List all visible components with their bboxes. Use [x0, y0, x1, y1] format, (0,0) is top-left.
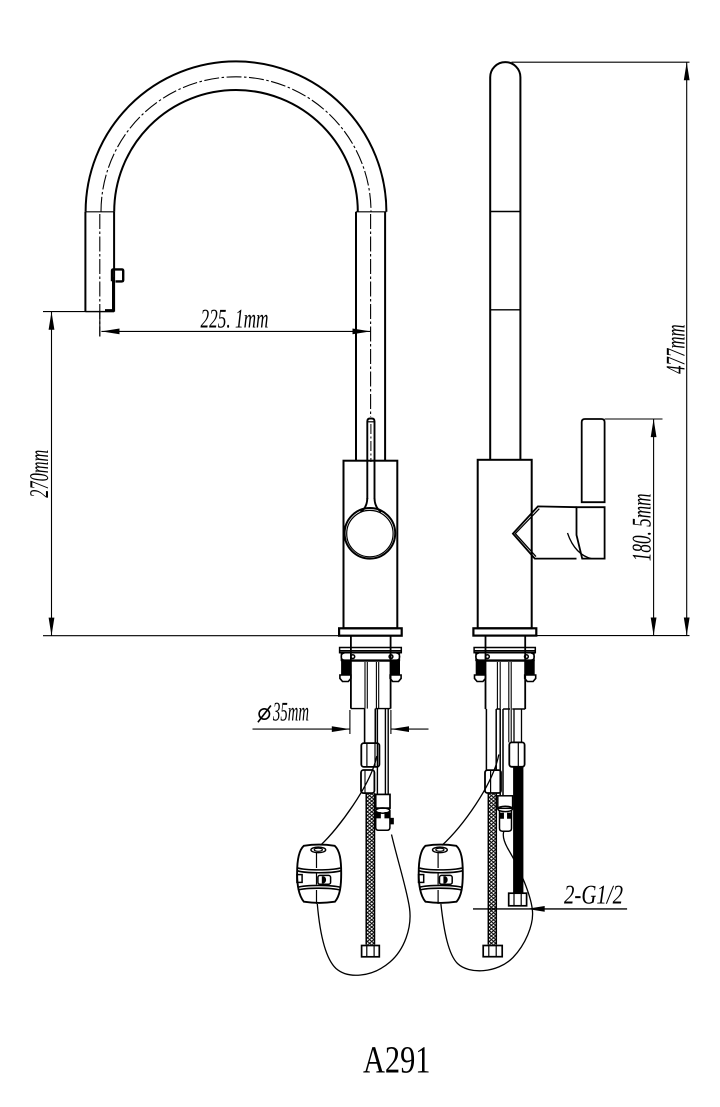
svg-text:225. 1mm: 225. 1mm [201, 304, 269, 334]
svg-text:A291: A291 [363, 1040, 431, 1082]
svg-text:35mm: 35mm [272, 697, 309, 727]
svg-text:477mm: 477mm [661, 324, 691, 374]
svg-text:180. 5mm: 180. 5mm [627, 494, 657, 562]
svg-text:2-G1/2: 2-G1/2 [564, 880, 623, 910]
svg-text:270mm: 270mm [24, 450, 54, 498]
